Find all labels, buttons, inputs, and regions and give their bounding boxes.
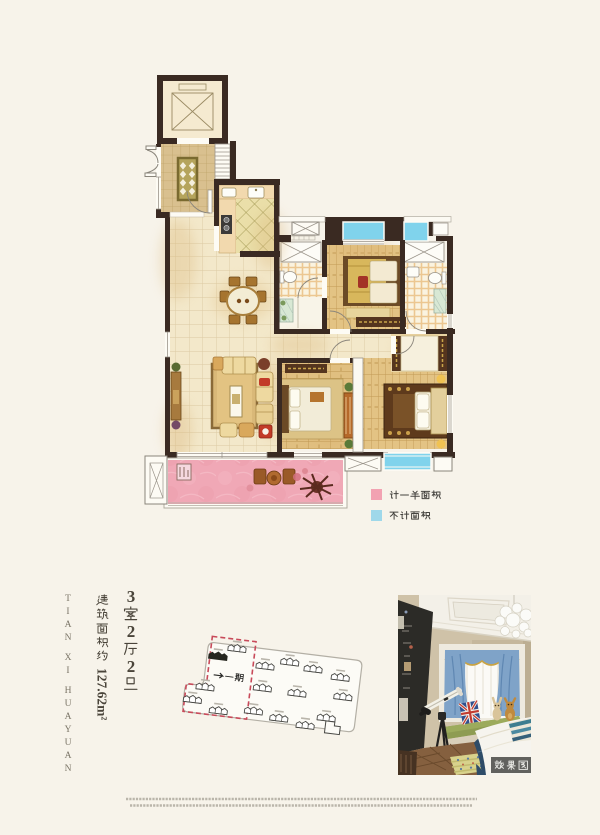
svg-text:U: U bbox=[65, 699, 72, 709]
svg-text:N: N bbox=[65, 633, 72, 643]
svg-text:A: A bbox=[65, 620, 72, 630]
svg-text:A: A bbox=[65, 712, 72, 722]
svg-text:H: H bbox=[65, 686, 72, 696]
svg-text:X: X bbox=[65, 653, 72, 663]
svg-text:2: 2 bbox=[127, 657, 136, 676]
svg-text:127.62m2: 127.62m2 bbox=[95, 668, 110, 720]
svg-text:A: A bbox=[65, 751, 72, 761]
svg-text:U: U bbox=[65, 738, 72, 748]
svg-text:2: 2 bbox=[127, 622, 136, 641]
svg-text:T: T bbox=[65, 594, 71, 604]
svg-text:I: I bbox=[66, 666, 69, 676]
svg-text:Y: Y bbox=[65, 725, 72, 735]
svg-text:I: I bbox=[66, 607, 69, 617]
svg-text:N: N bbox=[65, 764, 72, 774]
svg-text:3: 3 bbox=[127, 587, 136, 606]
